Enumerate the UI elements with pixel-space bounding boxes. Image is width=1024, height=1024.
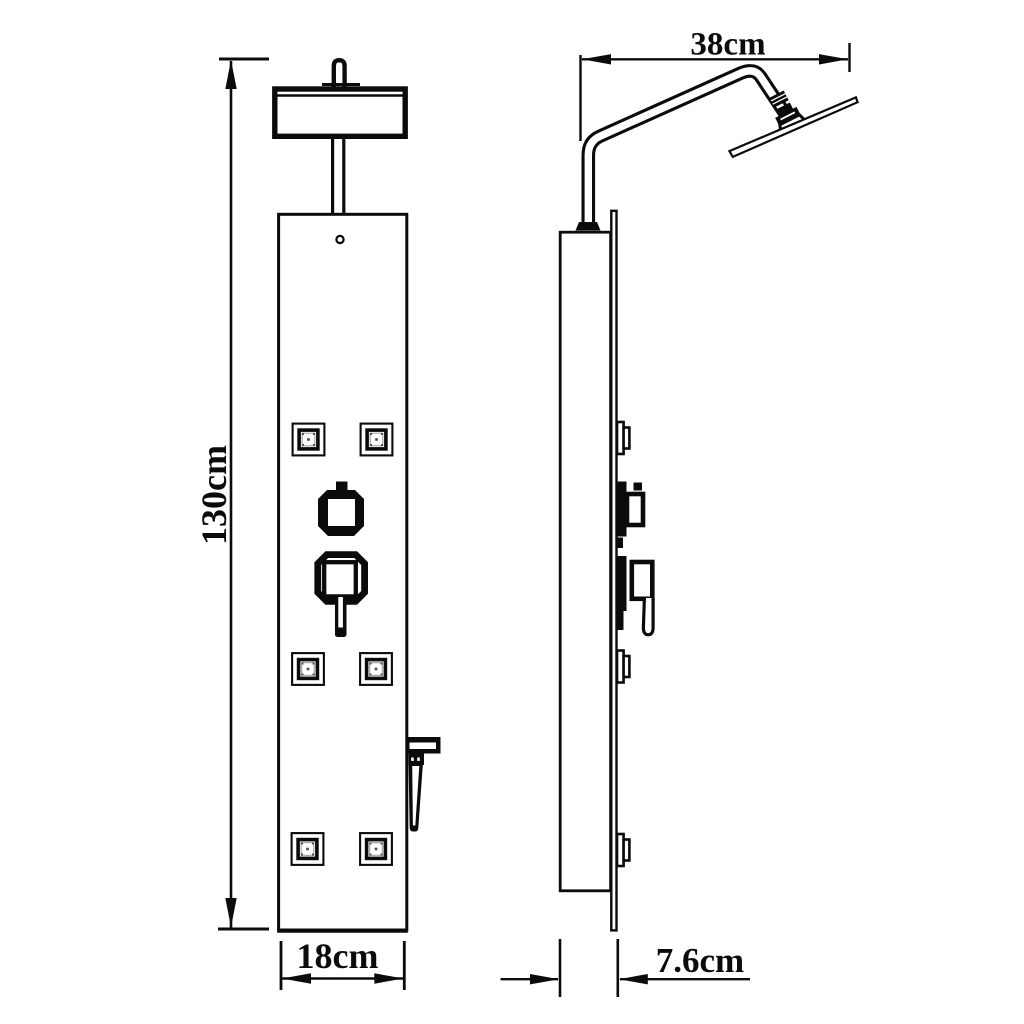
svg-text:18cm: 18cm [297,936,379,976]
svg-text:130cm: 130cm [194,445,234,545]
svg-text:38cm: 38cm [690,27,765,63]
svg-text:7.6cm: 7.6cm [656,941,744,980]
